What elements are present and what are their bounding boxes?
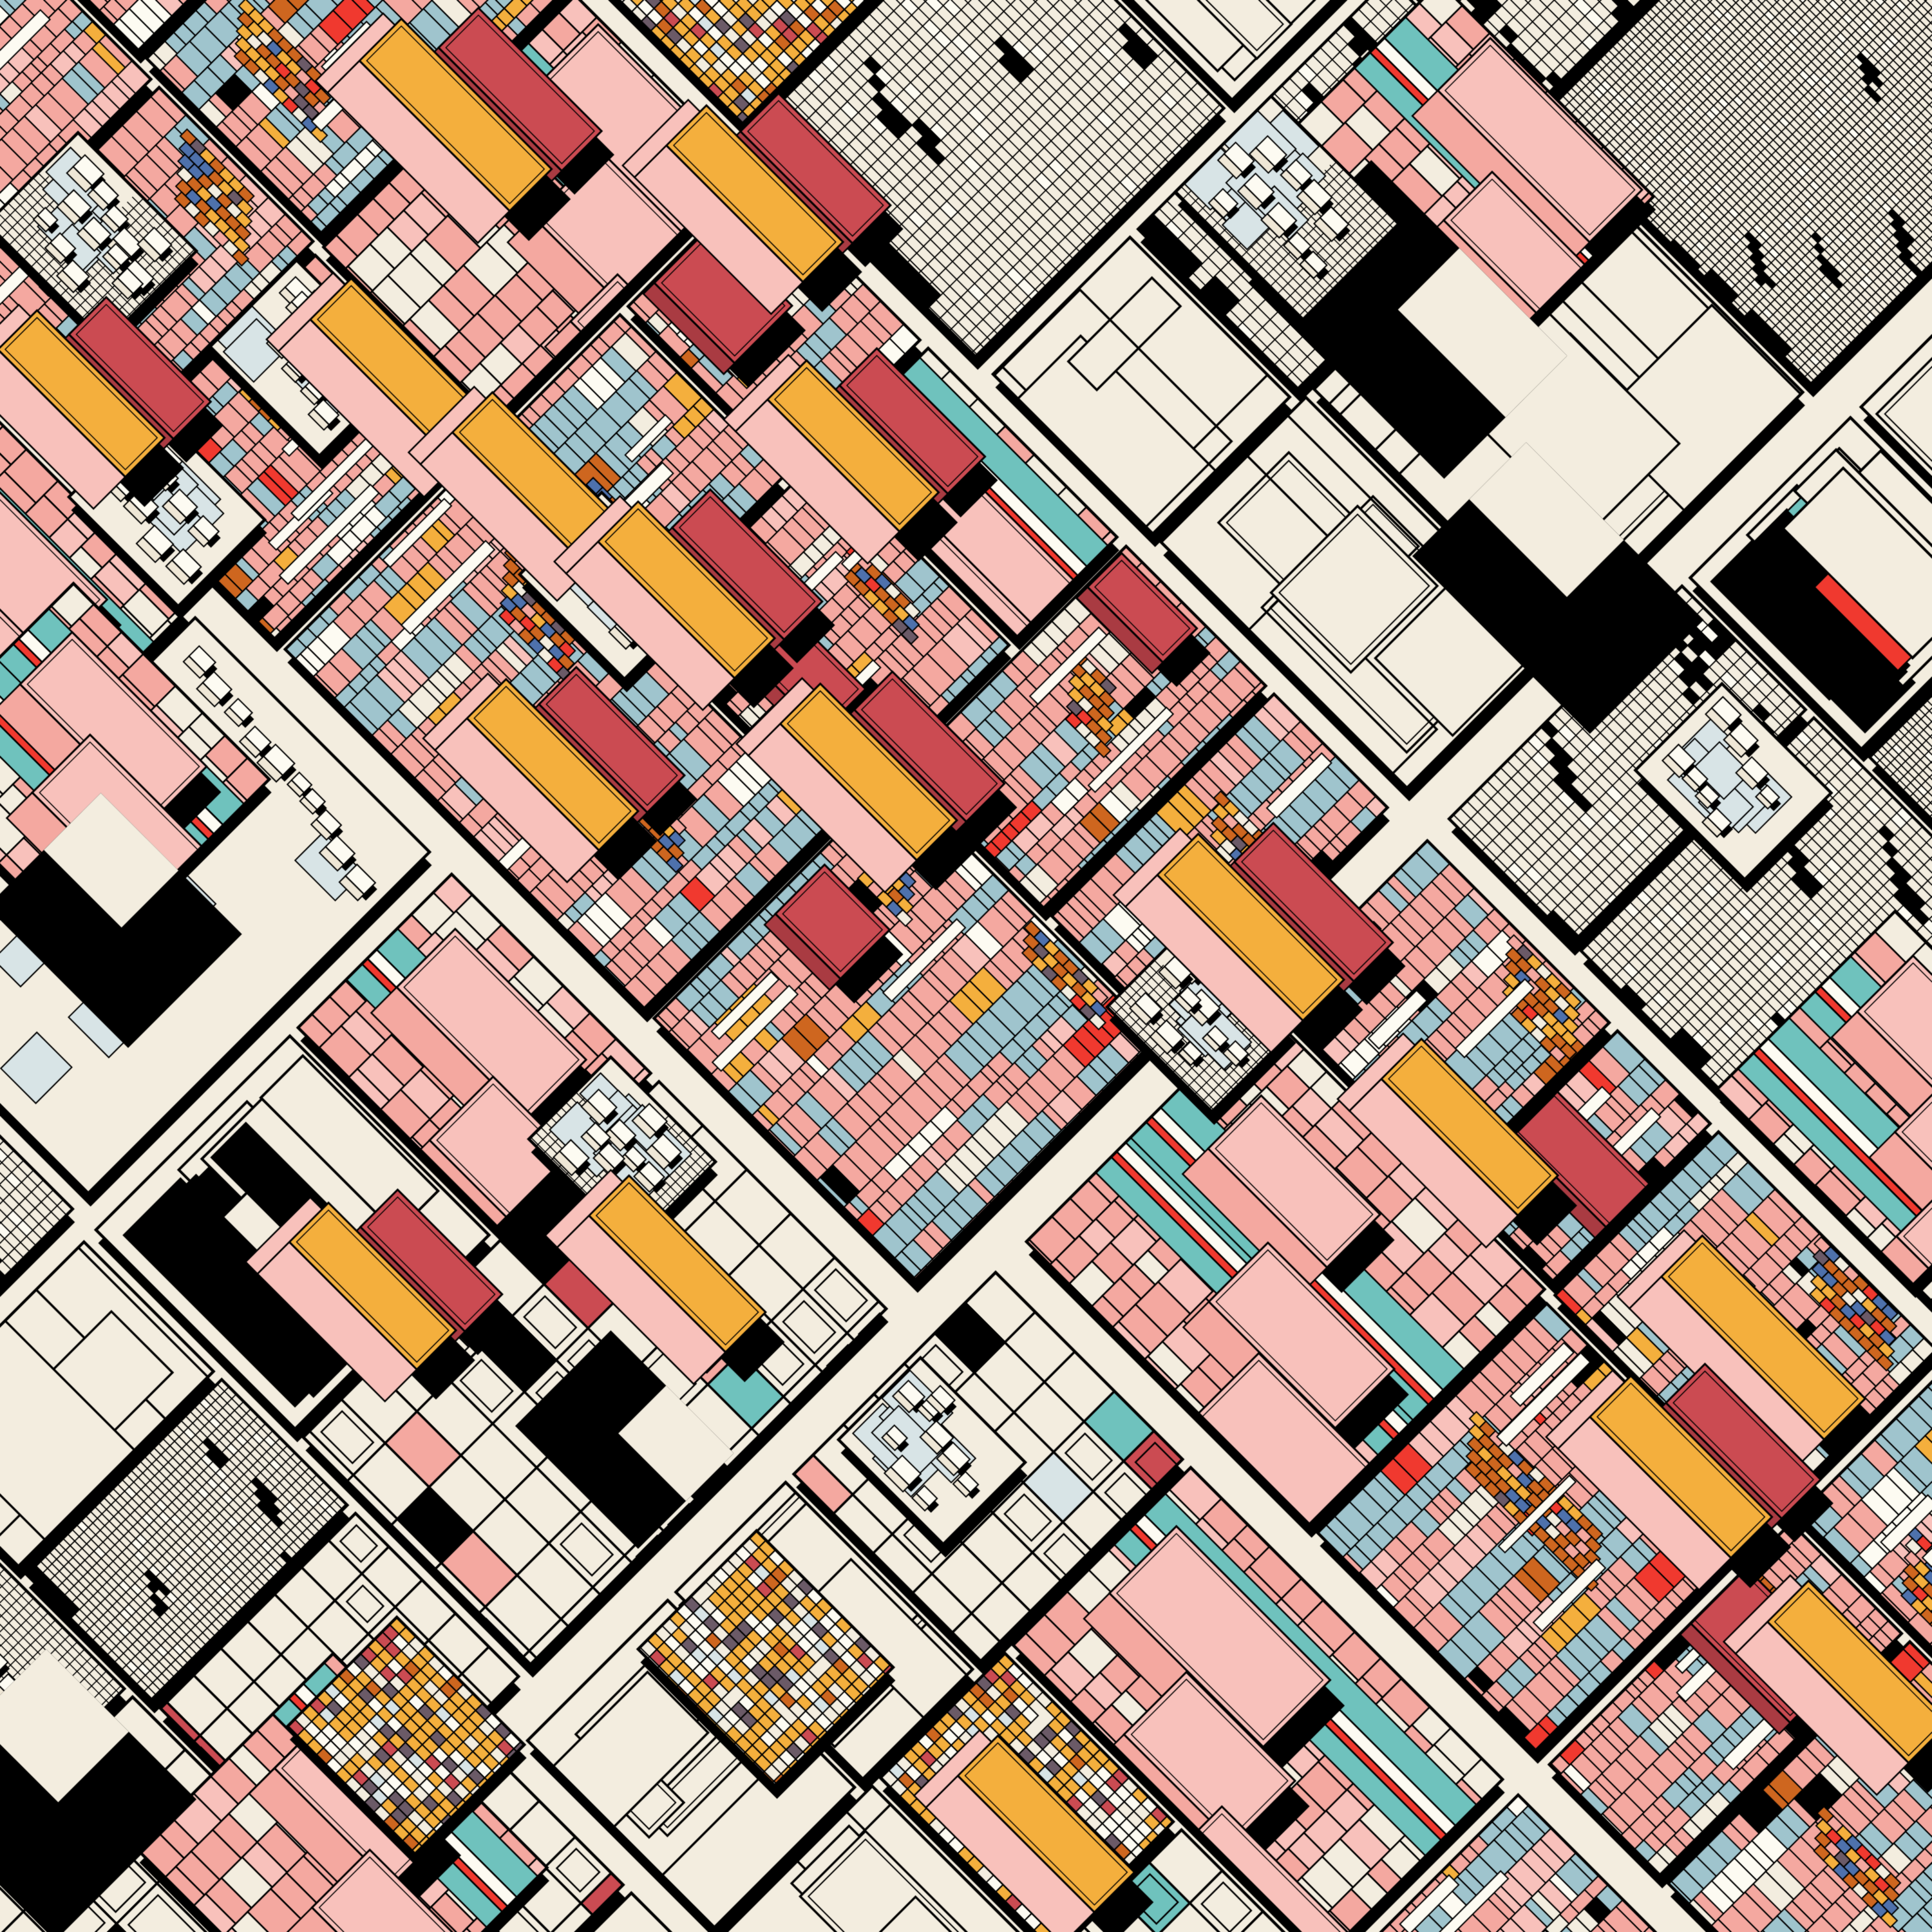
generative-artwork-stage [0, 0, 1932, 1932]
generative-artwork-canvas [0, 0, 1932, 1932]
